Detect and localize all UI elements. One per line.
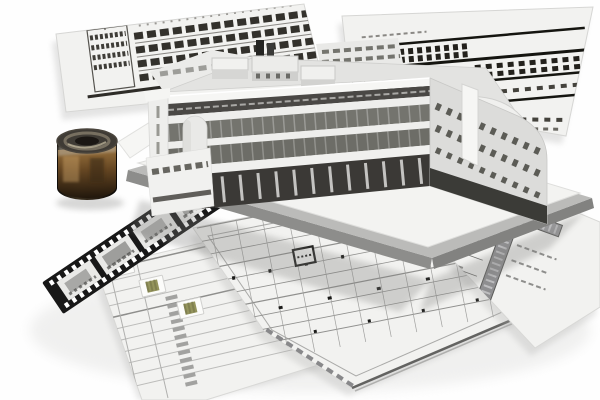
penthouse-box-face <box>212 70 248 79</box>
front-annex <box>146 148 214 216</box>
penthouse-box <box>252 56 298 72</box>
annex-face <box>146 148 214 216</box>
penthouse-box <box>212 58 248 70</box>
photo-glow <box>63 156 79 182</box>
photo-dark-panel <box>90 158 104 182</box>
vertical-fin <box>462 84 478 166</box>
architectural-montage <box>0 0 600 400</box>
scene-illustration <box>0 0 600 400</box>
top-center <box>75 137 99 146</box>
chimney <box>256 40 264 57</box>
chimney <box>267 43 274 57</box>
penthouse-box <box>301 66 335 80</box>
